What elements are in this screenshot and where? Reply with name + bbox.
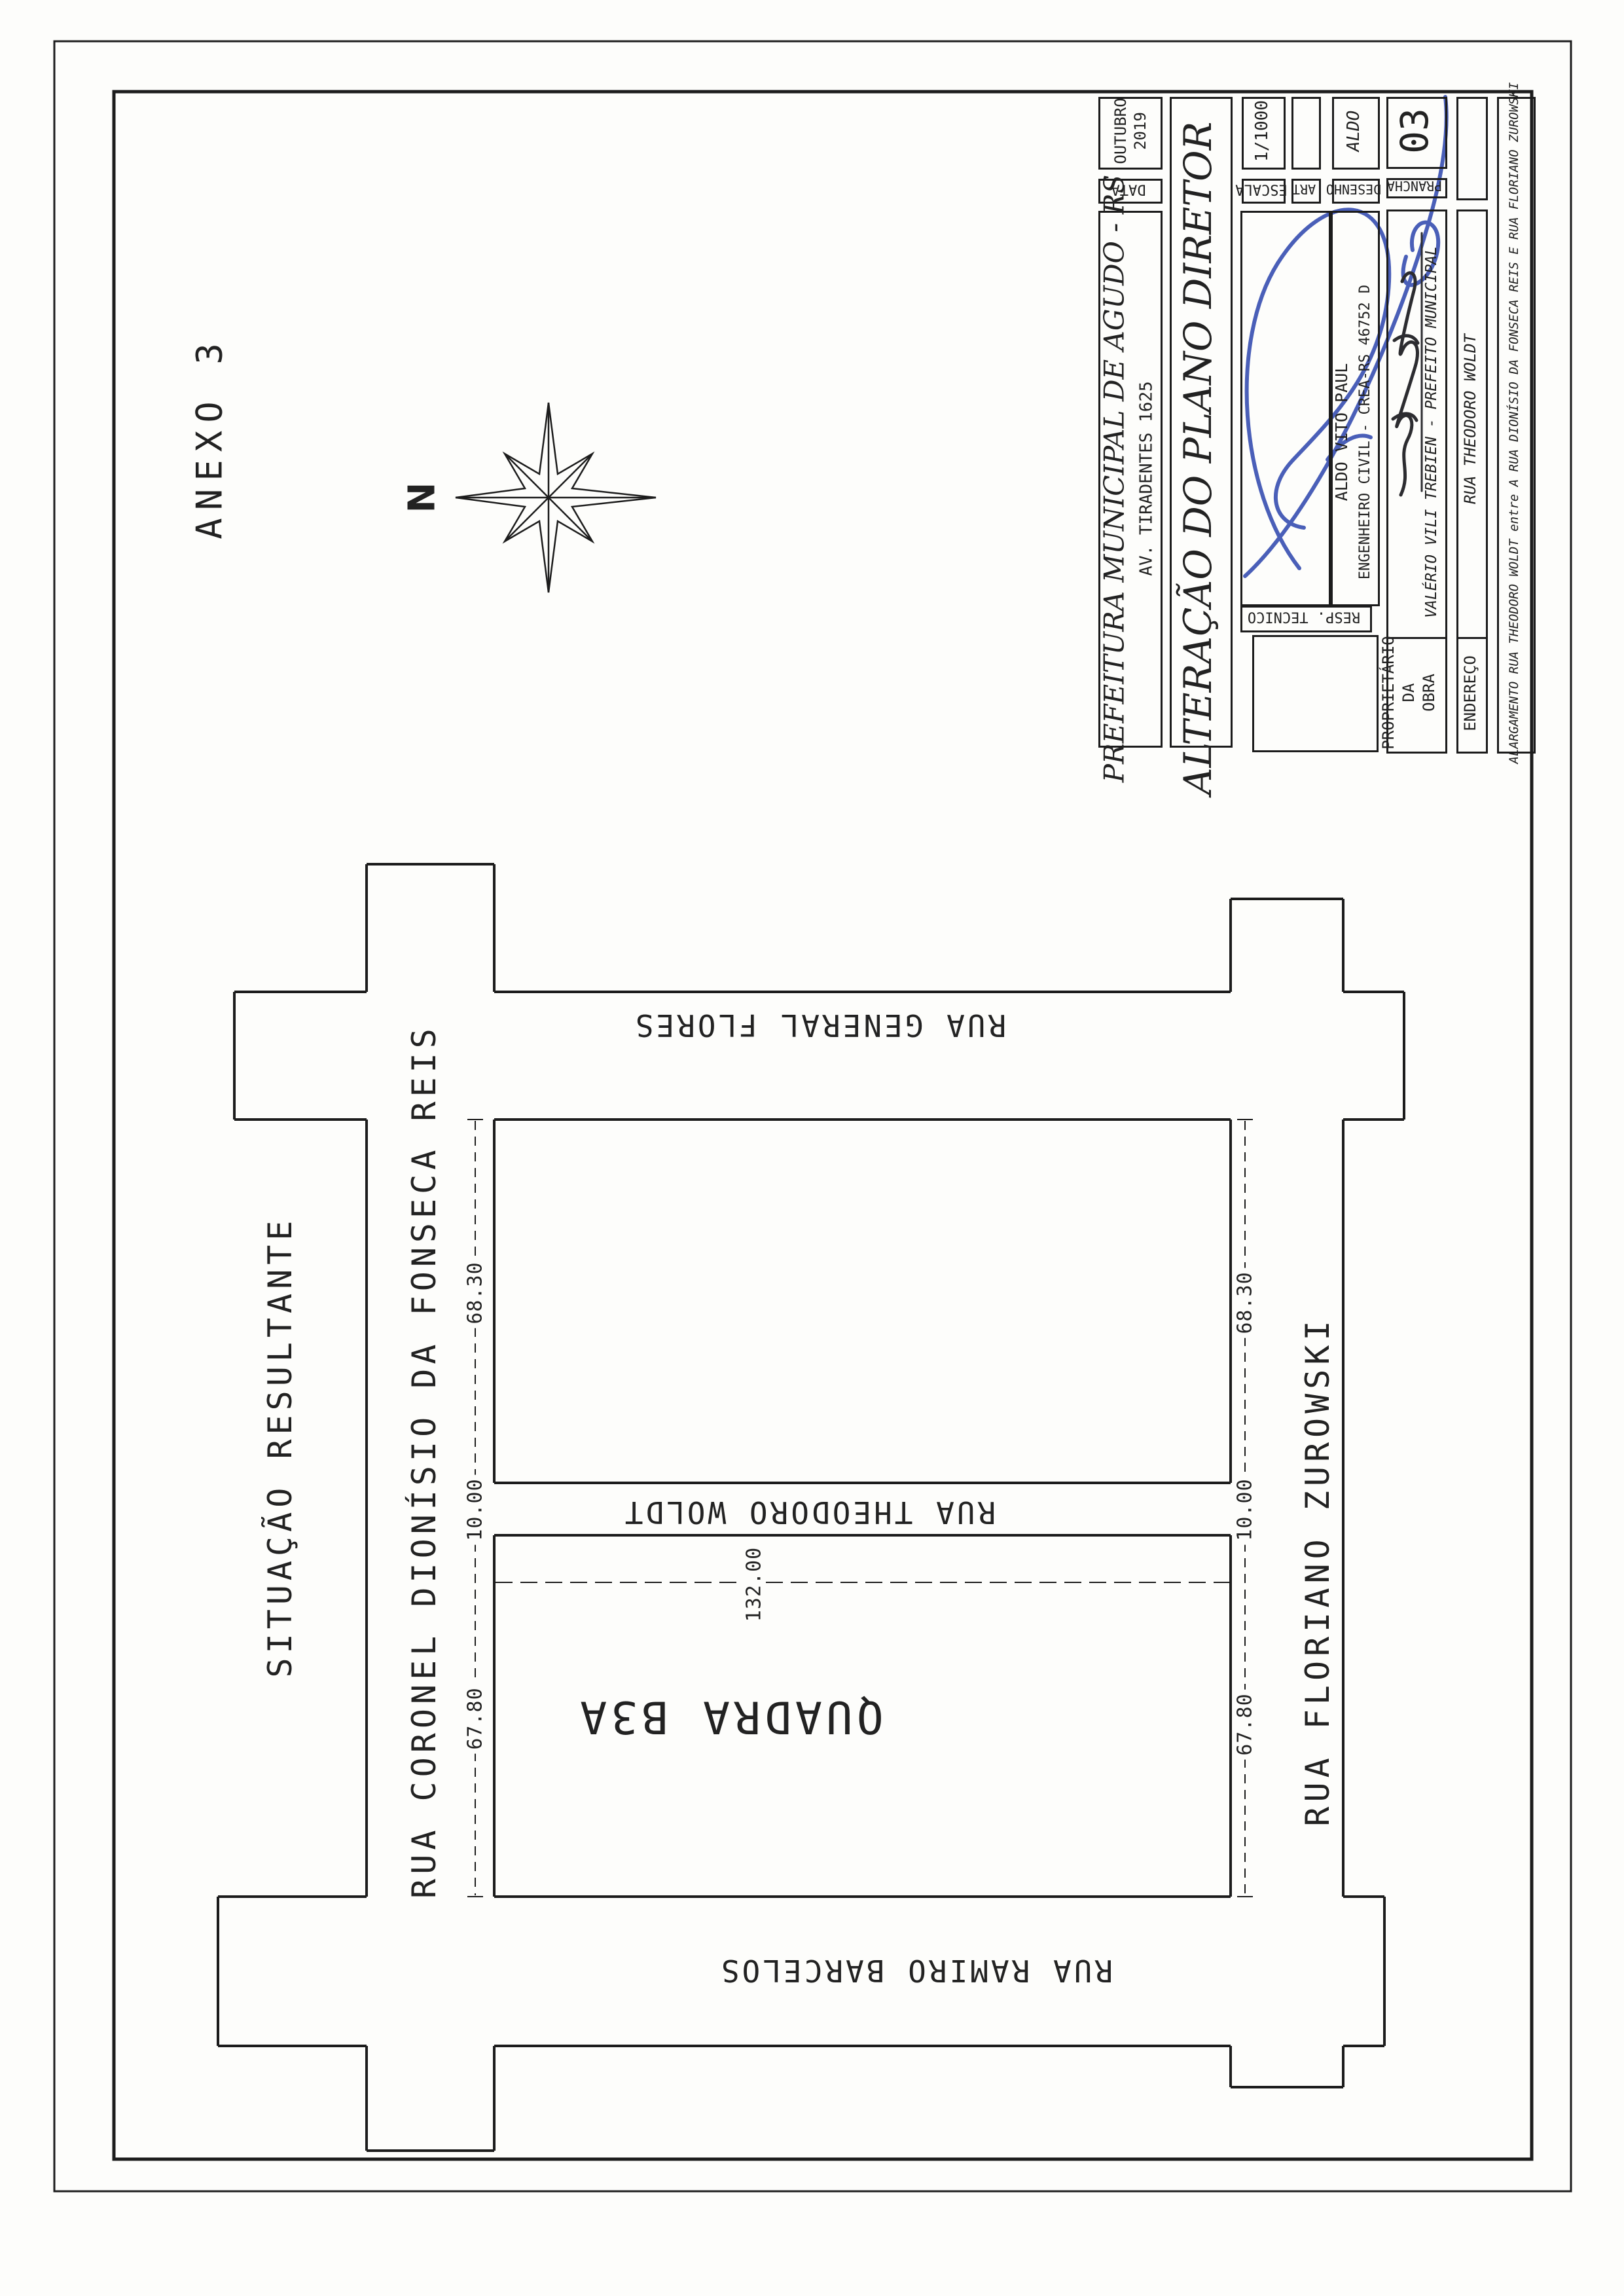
- annex-title: ANEXO 3: [189, 335, 230, 539]
- street-label-barcelos: RUA RAMIRO BARCELOS: [719, 1953, 1113, 1988]
- sheet-title: ALTERAÇÃO DO PLANO DIRETOR: [1176, 122, 1220, 795]
- date-month: OUTUBRO: [1111, 98, 1130, 164]
- address-label: ENDEREÇO: [1461, 655, 1479, 731]
- resp-name-block: ALDO VITO PAUL ENGENHEIRO CIVIL - CREA-R…: [1329, 285, 1376, 579]
- compass-rose: [456, 403, 656, 592]
- scanned-plan-sheet: OUTUBRO 2019 DATA PREFEITURA MUNICIPAL D…: [0, 0, 1624, 2296]
- work-description: ALARGAMENTO RUA THEODORO WOLDT entre A R…: [1507, 82, 1521, 764]
- resp-title: ENGENHEIRO CIVIL - CREA-RS 46752 D: [1354, 285, 1375, 579]
- art-value-box: [1291, 97, 1321, 170]
- owner-label: PROPRIETÁRIO DA OBRA: [1379, 636, 1440, 749]
- address-extra-box: [1456, 97, 1488, 200]
- org-line2: AV. TIRADENTES 1625: [1137, 175, 1157, 782]
- owner-label-l1: PROPRIETÁRIO: [1379, 636, 1399, 749]
- street-label-flores: RUA GENERAL FLORES: [633, 1008, 1007, 1043]
- scale-label: ESCALA: [1235, 181, 1287, 198]
- org-name: PREFEITURA MUNICIPAL DE AGUDO - RS AV. T…: [1098, 175, 1157, 782]
- compass-north-label: N: [401, 483, 444, 513]
- resp-name: ALDO VITO PAUL: [1329, 285, 1354, 579]
- situation-title: SITUAÇÃO RESULTANTE: [261, 1216, 299, 1678]
- dim-left-68: 68.30: [464, 1258, 487, 1328]
- street-label-woldt: RUA THEODORO WOLDT: [623, 1495, 996, 1530]
- drawnby-label: DESENHO: [1326, 181, 1381, 197]
- dim-right-68: 68.30: [1234, 1267, 1257, 1338]
- owner-label-l3: OBRA: [1420, 636, 1440, 749]
- street-label-fonseca: RUA CORONEL DIONÍSIO DA FONSECA REIS: [405, 1024, 443, 1899]
- dim-right-67: 67.80: [1234, 1689, 1257, 1759]
- drawing-linework: [0, 0, 1624, 2296]
- sheet-number: 03: [1392, 108, 1437, 154]
- dim-left-10: 10.00: [464, 1474, 487, 1544]
- resp-signature-box: [1240, 211, 1333, 606]
- org-line1: PREFEITURA MUNICIPAL DE AGUDO - RS: [1098, 175, 1130, 782]
- sheet-label: PRANCHA: [1387, 178, 1442, 194]
- scale-value: 1/1000: [1252, 100, 1272, 162]
- street-label-zurowski: RUA FLORIANO ZUROWSKI: [1299, 1316, 1337, 1826]
- owner-name: VALÉRIO VILI TREBIEN - PREFEITO MUNICIPA…: [1423, 246, 1440, 618]
- art-label: ART: [1292, 181, 1316, 197]
- dim-block-width: 132.00: [743, 1543, 766, 1626]
- owner-label-l2: DA: [1399, 636, 1419, 749]
- resp-extra-box: [1252, 635, 1379, 752]
- drawnby-value: ALDO: [1344, 111, 1363, 152]
- address-value: RUA THEODORO WOLDT: [1461, 334, 1479, 504]
- resp-label: RESP. TECNICO: [1248, 609, 1360, 625]
- dim-right-10: 10.00: [1234, 1474, 1257, 1544]
- block-label-quadra: QUADRA B3A: [576, 1691, 883, 1743]
- date-year: 2019: [1130, 98, 1150, 164]
- date-value: OUTUBRO 2019: [1111, 98, 1150, 164]
- dim-left-67: 67.80: [464, 1683, 487, 1753]
